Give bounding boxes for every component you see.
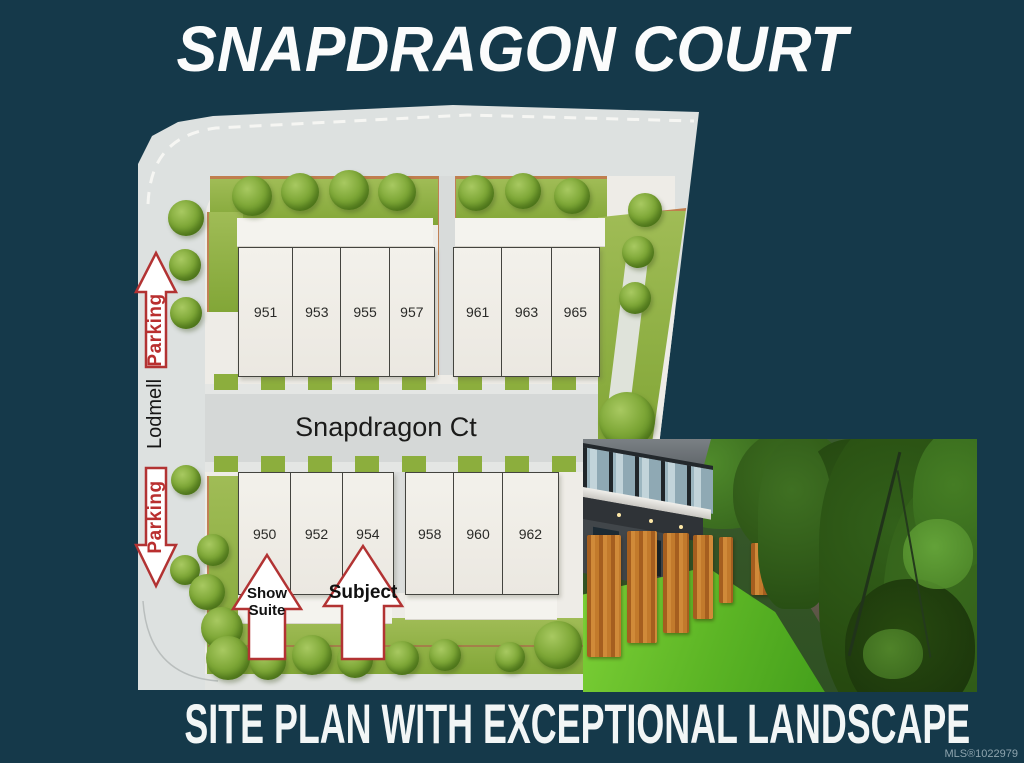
- unit-block-upper-right: 961 963 965: [453, 247, 600, 377]
- unit-number: 958: [418, 526, 441, 542]
- building-rear-upper-left: [237, 218, 433, 247]
- unit-number: 961: [466, 304, 489, 320]
- tree: [232, 176, 272, 216]
- hedge-row: [458, 456, 582, 472]
- photo-fence-panel: [663, 533, 689, 633]
- tree: [622, 236, 654, 268]
- photo-fence-panel: [587, 535, 621, 657]
- unit-number: 952: [305, 526, 328, 542]
- photo-porch-light: [617, 513, 621, 517]
- unit-number: 957: [400, 304, 423, 320]
- page-title: SNAPDRAGON COURT: [26, 12, 999, 86]
- unit-number: 953: [305, 304, 328, 320]
- poster: SNAPDRAGON COURT 951: [0, 0, 1024, 763]
- tree: [505, 173, 541, 209]
- unit-number: 963: [515, 304, 538, 320]
- tree: [329, 170, 369, 210]
- show-suite-label: Show Suite: [230, 586, 304, 620]
- photo-porch-light: [649, 519, 653, 523]
- street-label-lodmell: Lodmell: [144, 378, 172, 450]
- hedge-row: [214, 456, 436, 472]
- tree: [554, 178, 590, 214]
- photo-fence-panel: [693, 535, 713, 619]
- footer-caption: SITE PLAN WITH EXCEPTIONAL LANDSCAPE: [184, 696, 839, 752]
- unit-cell: 953: [292, 248, 340, 376]
- photo-fence-panel: [627, 531, 657, 643]
- parking-arrow-down: Parking: [133, 465, 179, 589]
- unit-cell: 958: [406, 473, 453, 594]
- photo-leaf-highlight: [903, 519, 973, 589]
- building-rear-upper-right: [455, 218, 605, 247]
- photo-leaf-highlight: [863, 629, 923, 679]
- unit-cell: 957: [389, 248, 434, 376]
- parking-label: Parking: [145, 294, 167, 367]
- unit-block-lower-right: 958 960 962: [405, 472, 559, 595]
- unit-block-upper-left: 951 953 955 957: [238, 247, 435, 377]
- photo-fence-panel: [719, 537, 733, 603]
- unit-cell: 963: [501, 248, 550, 376]
- parking-arrow-up: Parking: [133, 250, 179, 370]
- unit-number: 955: [353, 304, 376, 320]
- tree: [534, 621, 582, 669]
- street-label-snapdragon-ct: Snapdragon Ct: [266, 412, 506, 443]
- building-rear-lower-right: [405, 593, 557, 620]
- tree: [189, 574, 225, 610]
- unit-cell: 965: [551, 248, 599, 376]
- unit-cell: 961: [454, 248, 501, 376]
- unit-number: 960: [466, 526, 489, 542]
- unit-number: 951: [254, 304, 277, 320]
- tree: [458, 175, 494, 211]
- unit-cell: 962: [502, 473, 558, 594]
- unit-number: 965: [564, 304, 587, 320]
- photo-porch-light: [679, 525, 683, 529]
- tree: [281, 173, 319, 211]
- unit-cell: 955: [340, 248, 388, 376]
- subject-label: Subject: [316, 582, 410, 603]
- tree: [495, 642, 525, 672]
- tree: [197, 534, 229, 566]
- unit-number: 962: [519, 526, 542, 542]
- tree: [168, 200, 204, 236]
- tree: [628, 193, 662, 227]
- mls-number: MLS®1022979: [944, 748, 1018, 760]
- tree: [429, 639, 461, 671]
- parking-label: Parking: [145, 480, 167, 553]
- tree: [619, 282, 651, 314]
- tree: [378, 173, 416, 211]
- landscape-photo: [583, 439, 977, 692]
- unit-cell: 951: [239, 248, 292, 376]
- unit-number: 954: [356, 526, 379, 542]
- unit-number: 950: [253, 526, 276, 542]
- unit-cell: 960: [453, 473, 501, 594]
